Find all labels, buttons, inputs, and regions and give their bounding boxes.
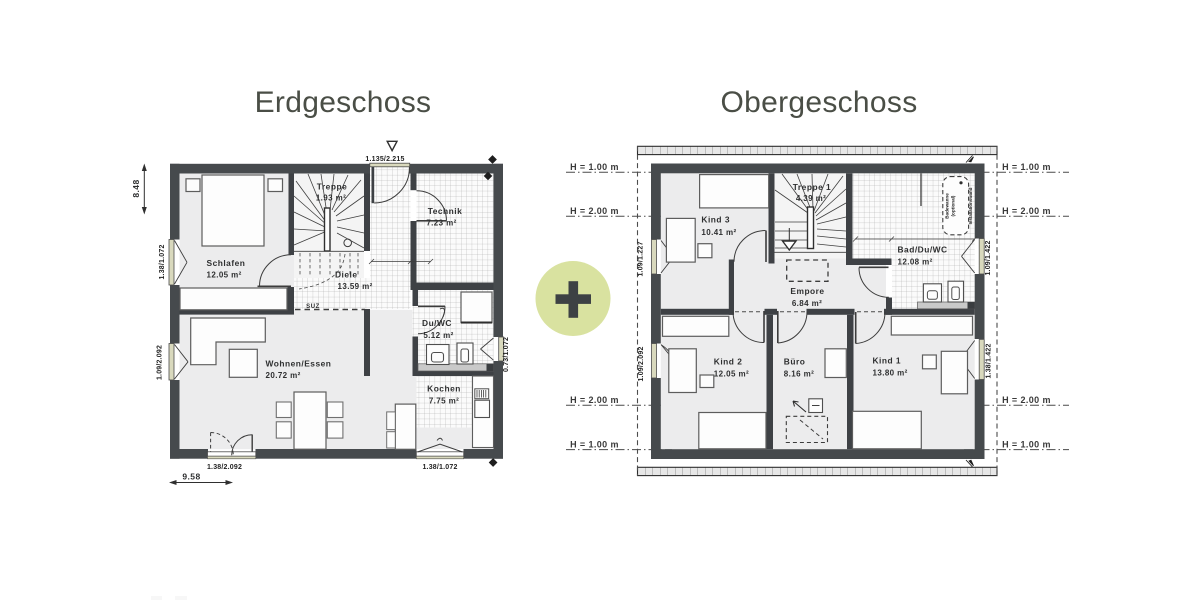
svg-text:Technik: Technik <box>428 206 463 216</box>
svg-text:1.09/1.227: 1.09/1.227 <box>638 241 645 276</box>
svg-text:Treppe: Treppe <box>317 182 347 192</box>
svg-text:12.05 m²: 12.05 m² <box>207 271 242 280</box>
svg-text:Diele: Diele <box>335 269 358 279</box>
svg-text:Kind 2: Kind 2 <box>714 357 743 367</box>
svg-text:H = 2.00 m: H = 2.00 m <box>1002 395 1051 405</box>
svg-text:1.38/1.422: 1.38/1.422 <box>986 343 993 378</box>
svg-text:Kind 3: Kind 3 <box>701 215 730 225</box>
svg-text:1.38/1.072: 1.38/1.072 <box>159 244 166 279</box>
svg-text:12.08 m²: 12.08 m² <box>898 258 933 267</box>
svg-text:1.09/2.092: 1.09/2.092 <box>157 345 164 380</box>
svg-text:1.38/2.092: 1.38/2.092 <box>207 464 242 471</box>
svg-text:SUZ: SUZ <box>306 304 320 310</box>
svg-text:0.73/1.072: 0.73/1.072 <box>503 337 510 372</box>
svg-text:10.41 m²: 10.41 m² <box>701 228 736 237</box>
svg-text:Erdgeschoss: Erdgeschoss <box>255 86 432 119</box>
svg-text:H = 1.00 m: H = 1.00 m <box>570 162 619 172</box>
svg-text:12.05 m²: 12.05 m² <box>714 369 749 378</box>
svg-text:13.80 m²: 13.80 m² <box>873 368 908 377</box>
svg-text:1.09/2.092: 1.09/2.092 <box>638 346 645 381</box>
svg-text:H = 1.00 m: H = 1.00 m <box>1002 162 1051 172</box>
svg-text:7.23 m²: 7.23 m² <box>426 219 456 228</box>
svg-text:Kind 1: Kind 1 <box>873 356 902 366</box>
svg-text:1.93 m²: 1.93 m² <box>316 194 346 203</box>
svg-text:Obergeschoss: Obergeschoss <box>720 86 917 119</box>
svg-text:8.16 m²: 8.16 m² <box>784 369 814 378</box>
svg-text:Schlafen: Schlafen <box>207 258 246 268</box>
svg-text:6.84 m²: 6.84 m² <box>792 299 822 308</box>
svg-text:Wohnen/Essen: Wohnen/Essen <box>266 358 332 368</box>
svg-text:8.48: 8.48 <box>131 179 141 197</box>
svg-text:7.75 m²: 7.75 m² <box>429 396 459 405</box>
svg-text:9.58: 9.58 <box>182 471 200 481</box>
svg-text:13.59 m²: 13.59 m² <box>338 282 373 291</box>
svg-text:Büro: Büro <box>784 357 806 367</box>
svg-text:H = 2.00 m: H = 2.00 m <box>570 395 619 405</box>
svg-text:(optional): (optional) <box>950 195 955 216</box>
svg-text:4.39 m²: 4.39 m² <box>796 194 826 203</box>
svg-text:Badewanne: Badewanne <box>944 193 949 219</box>
svg-text:H = 1.00 m: H = 1.00 m <box>1002 439 1051 449</box>
svg-text:Empore: Empore <box>790 286 824 296</box>
svg-text:H = 1.00 m: H = 1.00 m <box>570 439 619 449</box>
svg-text:Treppe 1: Treppe 1 <box>793 182 831 192</box>
svg-text:1.38/1.072: 1.38/1.072 <box>422 464 457 471</box>
svg-text:Installationswand: Installationswand <box>968 187 973 224</box>
svg-text:Du/WC: Du/WC <box>422 318 452 328</box>
svg-text:Bad/Du/WC: Bad/Du/WC <box>898 245 948 255</box>
svg-text:1.09/1.422: 1.09/1.422 <box>985 240 992 275</box>
svg-text:H = 2.00 m: H = 2.00 m <box>1002 206 1051 216</box>
svg-text:5.12 m²: 5.12 m² <box>423 331 453 340</box>
svg-text:20.72 m²: 20.72 m² <box>266 371 301 380</box>
svg-text:H = 2.00 m: H = 2.00 m <box>570 206 619 216</box>
svg-text:1.135/2.215: 1.135/2.215 <box>365 156 404 163</box>
svg-text:Kochen: Kochen <box>427 384 461 394</box>
